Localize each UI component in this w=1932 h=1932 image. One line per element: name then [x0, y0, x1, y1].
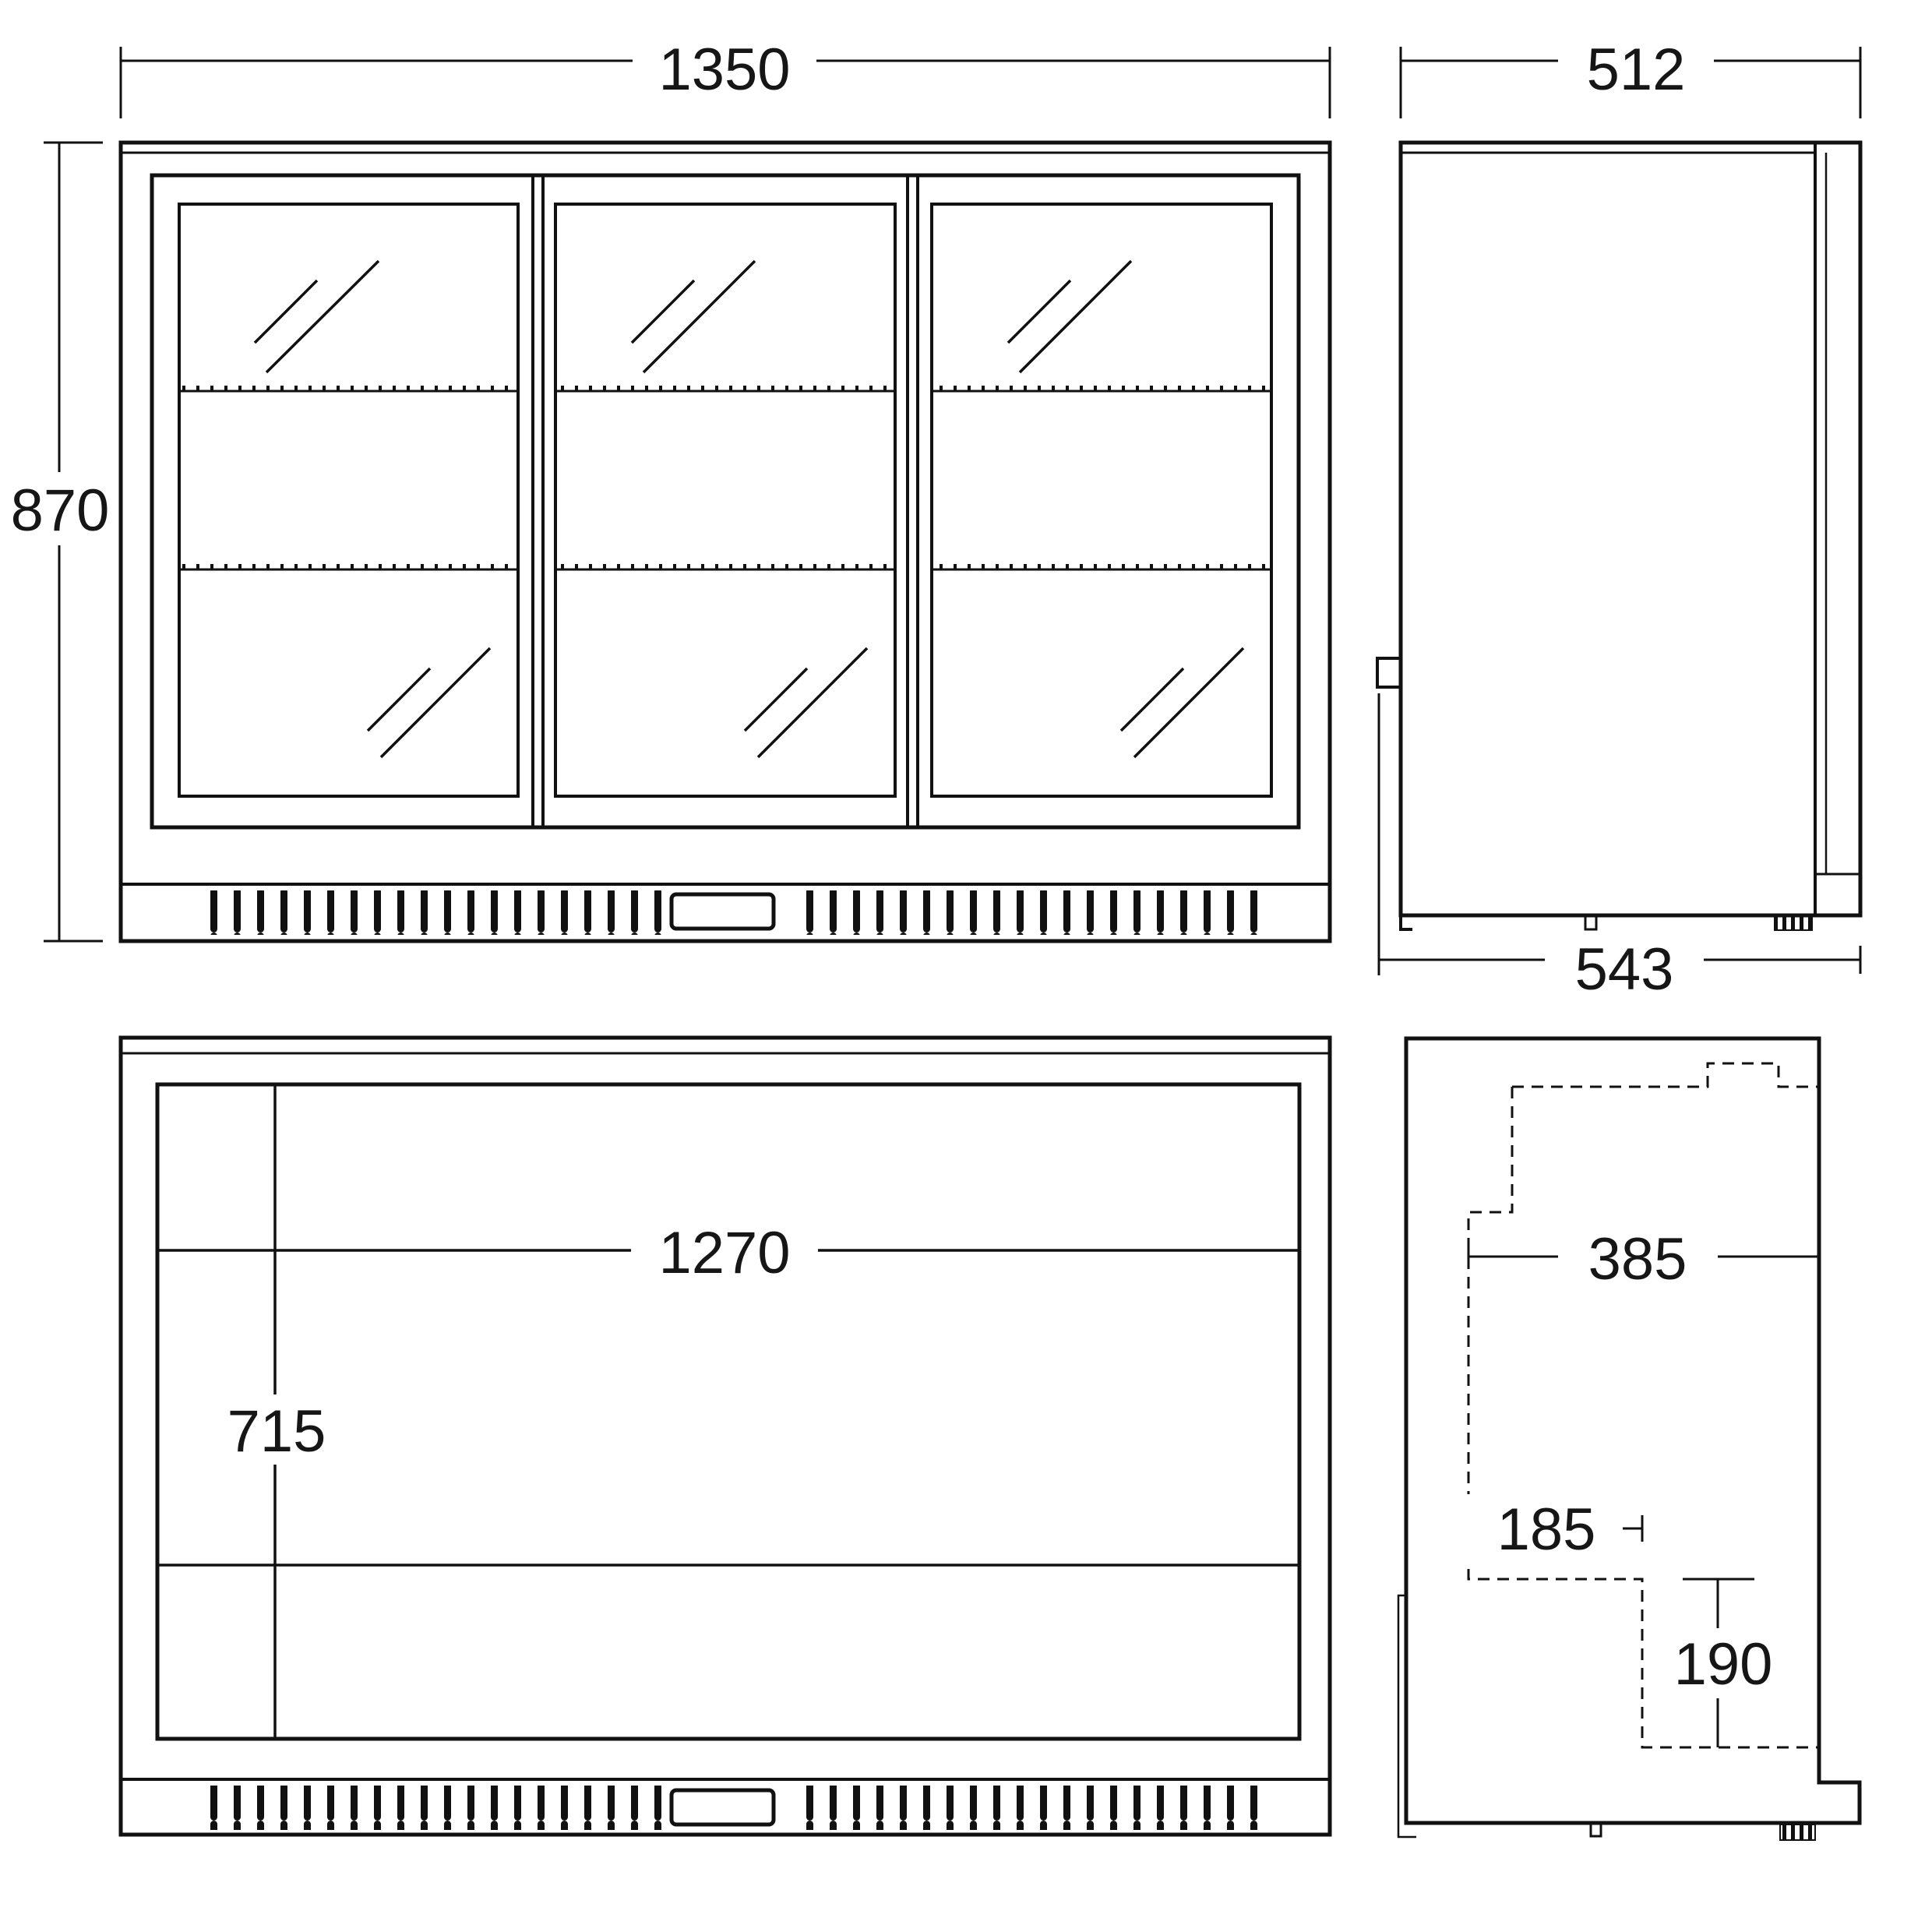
internal-side-foot-caster — [1780, 1824, 1815, 1840]
dim-label-side-overall-depth: 543 — [1575, 936, 1674, 1003]
dimension-internal-width: 1270 — [631, 1217, 818, 1286]
dim-label-front-height: 870 — [11, 478, 110, 544]
dim-label-recess-depth: 185 — [1497, 1497, 1596, 1563]
technical-drawing: 1350 870 512 — [0, 0, 1932, 1932]
drawing-sheet: 1350 870 512 — [0, 0, 1932, 1932]
dimension-recess-depth: 185 — [1467, 1494, 1642, 1563]
dim-label-recess-height: 190 — [1674, 1631, 1773, 1698]
vent-grille-left — [210, 890, 669, 935]
dim-label-internal-depth: 385 — [1588, 1226, 1687, 1292]
side-foot-caster — [1775, 915, 1812, 930]
vent-grille-right — [806, 890, 1258, 935]
dim-label-internal-width: 1270 — [658, 1220, 790, 1286]
dimension-internal-height: 715 — [225, 1394, 328, 1465]
dim-label-front-width: 1350 — [658, 37, 790, 103]
dim-label-side-depth: 512 — [1587, 37, 1686, 103]
dim-label-internal-height: 715 — [227, 1398, 326, 1465]
vent-grille-right-2 — [806, 1786, 1258, 1830]
vent-grille-left-2 — [210, 1786, 669, 1830]
